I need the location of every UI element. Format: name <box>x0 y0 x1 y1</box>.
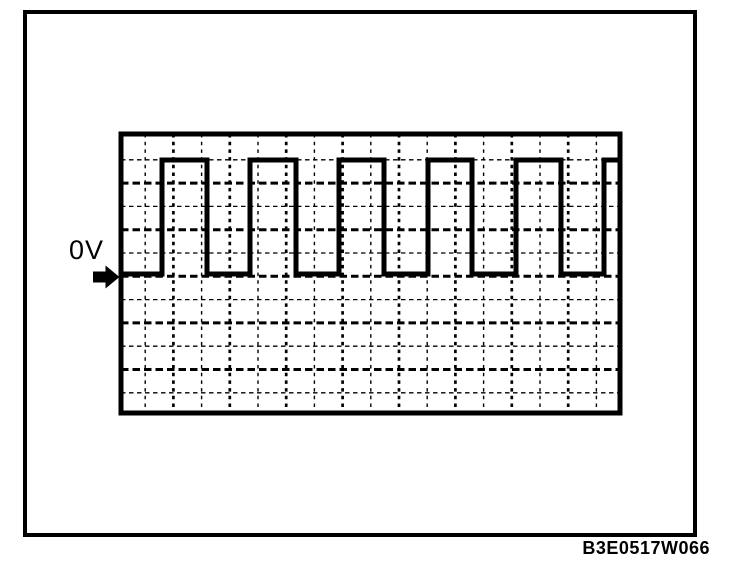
generated-layers <box>25 12 695 535</box>
figure-code-label: B3E0517W066 <box>582 539 710 557</box>
zero-level-arrow-icon <box>93 266 120 289</box>
oscilloscope-figure: 0V B3E0517W066 <box>0 0 736 572</box>
zero-volt-label: 0V <box>69 237 104 264</box>
oscilloscope-chart <box>0 0 736 572</box>
